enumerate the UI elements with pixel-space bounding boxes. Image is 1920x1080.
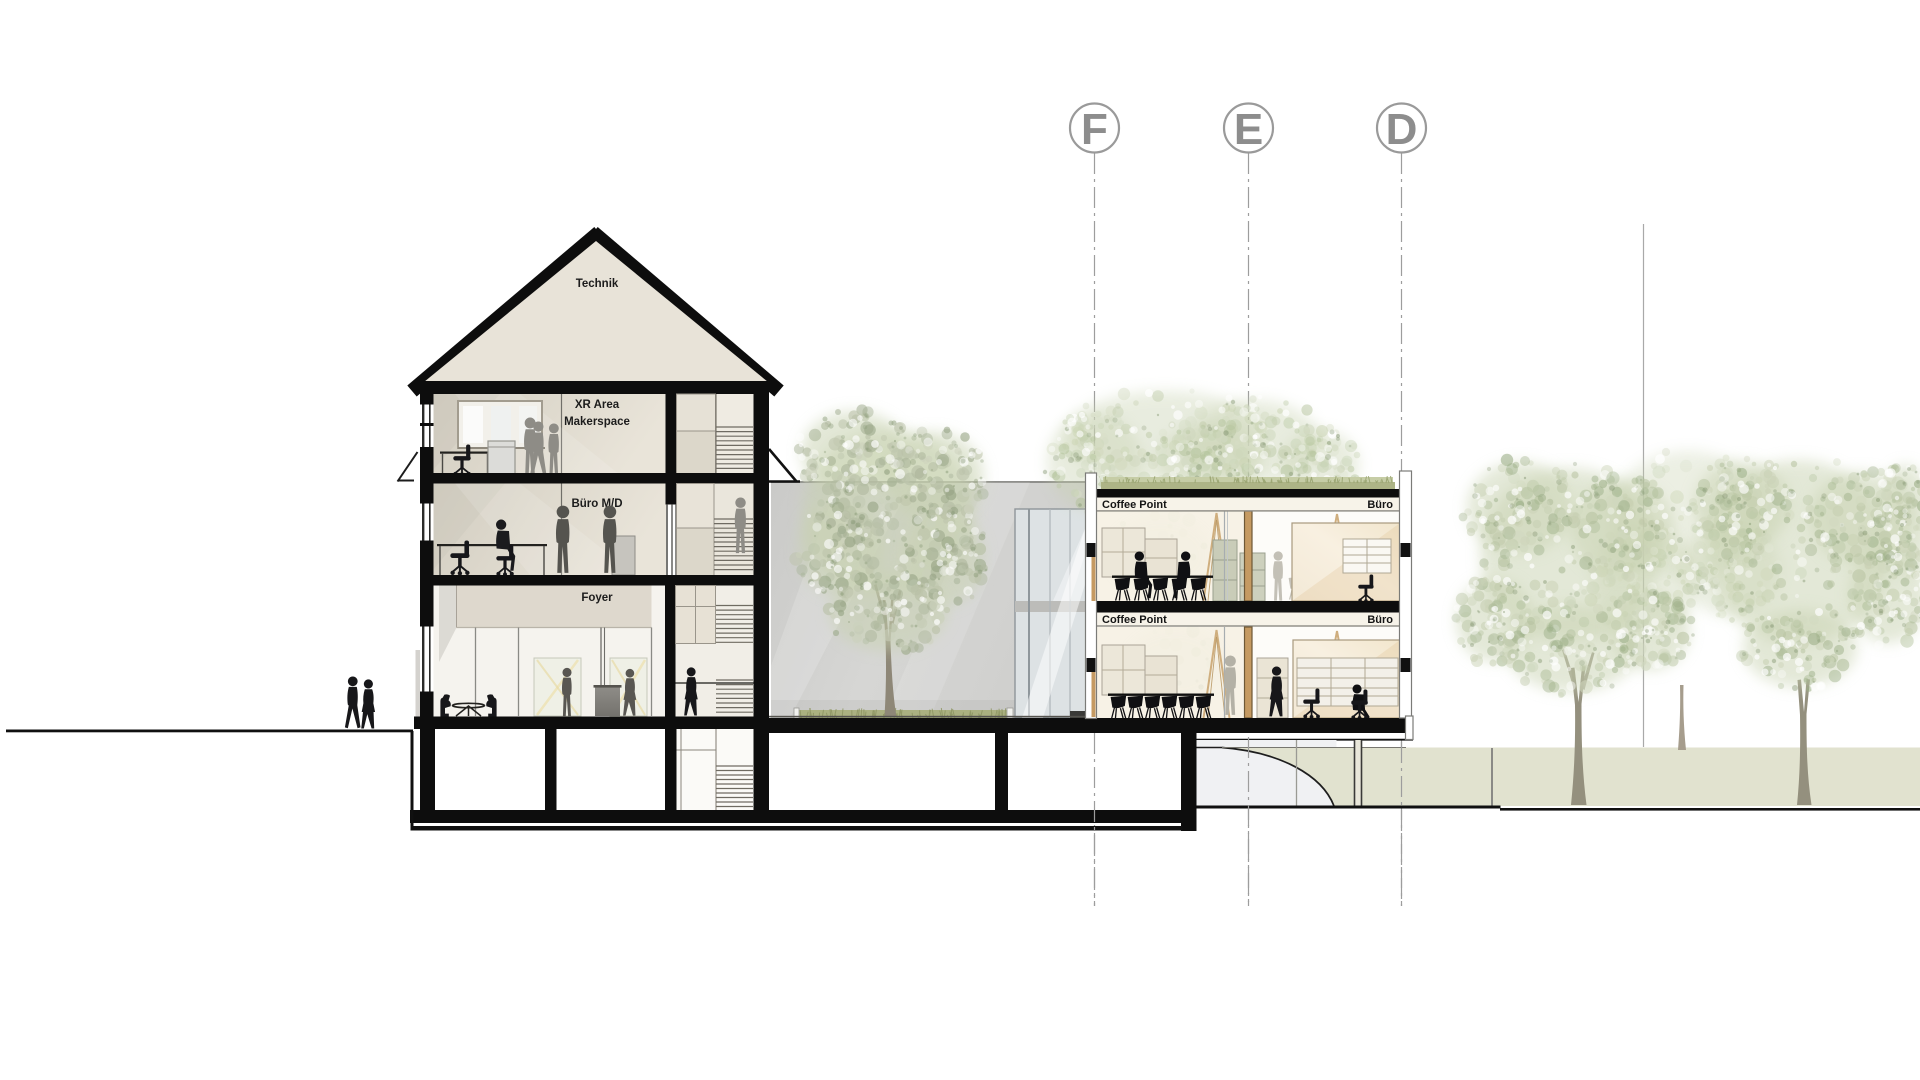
svg-text:Technik: Technik <box>576 278 619 290</box>
svg-text:XR Area: XR Area <box>575 399 620 411</box>
svg-text:Coffee Point: Coffee Point <box>1102 614 1167 626</box>
svg-text:Foyer: Foyer <box>581 592 613 604</box>
svg-text:Coffee Point: Coffee Point <box>1102 499 1167 511</box>
svg-text:Büro: Büro <box>1367 614 1393 626</box>
svg-text:F: F <box>1081 105 1108 154</box>
svg-text:D: D <box>1386 105 1418 154</box>
svg-text:Büro: Büro <box>1367 499 1393 511</box>
svg-text:Makerspace: Makerspace <box>564 416 630 428</box>
svg-text:E: E <box>1234 105 1263 154</box>
